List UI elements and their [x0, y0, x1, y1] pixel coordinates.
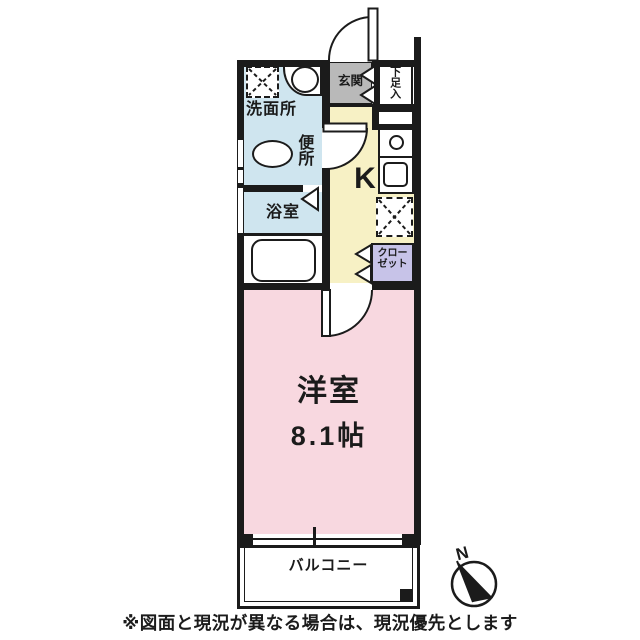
closet-folding-door-icon — [354, 244, 373, 285]
main-room-door-swing-icon — [319, 282, 377, 342]
main-room-size-label: 8.1帖 — [244, 421, 414, 452]
floor-plan: 洗面所 便所 浴室 玄関 下足入 K クロー ゼット 洋室 8.1帖 バルコニー… — [0, 0, 640, 640]
bath-label: 浴室 — [244, 204, 322, 222]
wall-segment — [372, 283, 421, 290]
wall-segment — [237, 60, 244, 545]
bathtub-divider-line — [244, 233, 322, 236]
sliding-window-line — [253, 538, 402, 540]
balcony — [237, 545, 420, 609]
closet-label-line2: ゼット — [373, 259, 412, 270]
entrance-label: 玄関 — [329, 74, 372, 88]
bathtub-icon — [251, 239, 316, 282]
wall-segment — [322, 60, 330, 128]
window-slot — [238, 170, 243, 183]
wall-segment — [402, 534, 421, 545]
sink-basin-icon — [291, 66, 319, 93]
counter-divider — [380, 156, 412, 158]
stove-icon — [389, 135, 404, 150]
main-room-label: 洋室 — [244, 375, 414, 410]
footer-note: ※図面と現況が異なる場合は、現況優先とします — [0, 613, 640, 633]
wall-segment — [237, 283, 326, 290]
wall-segment — [322, 168, 330, 290]
closet-label-line1: クロー — [373, 248, 412, 259]
balcony-label: バルコニー — [237, 557, 420, 574]
toilet-label: 便所 — [294, 134, 312, 184]
window-slot — [379, 112, 412, 124]
compass-n-label: N — [454, 543, 471, 565]
wall-segment — [237, 534, 253, 545]
kitchen-label: K — [345, 162, 385, 197]
refrigerator-space-icon — [376, 197, 413, 237]
closet-label: クロー ゼット — [373, 248, 412, 270]
wall-segment — [237, 60, 329, 67]
washing-machine-space-icon — [246, 66, 279, 98]
shoe-cabinet-label: 下足入 — [388, 66, 401, 104]
compass: N — [444, 539, 506, 613]
entrance-door-swing-icon — [326, 7, 380, 63]
toilet-icon — [252, 140, 293, 168]
kitchen-sink-icon — [383, 162, 408, 187]
balcony-corner-block — [400, 589, 412, 602]
wall-segment — [244, 185, 303, 192]
window-slot — [238, 140, 243, 167]
washroom-label: 洗面所 — [246, 101, 297, 119]
window-slot — [238, 188, 243, 233]
